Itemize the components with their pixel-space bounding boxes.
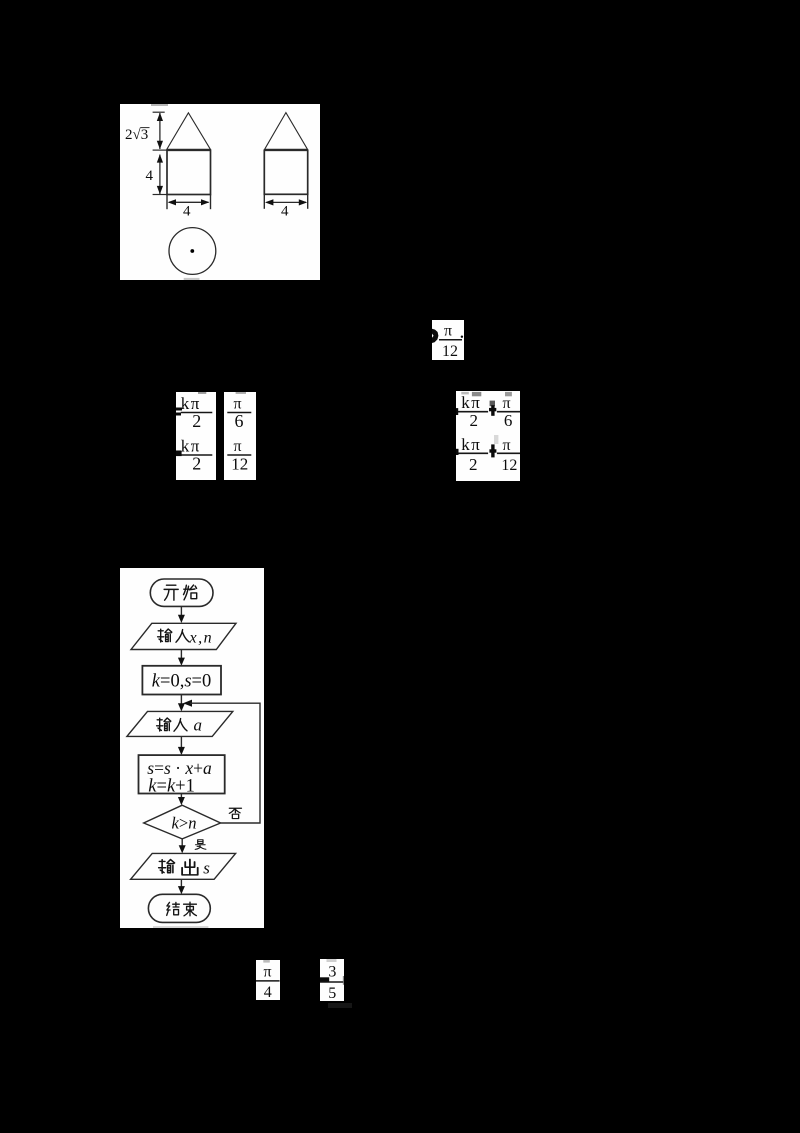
svg-text:2√3: 2√3 [125,127,148,143]
svg-text:π: π [502,437,510,454]
svg-text:kπ: kπ [181,394,200,413]
svg-text:12: 12 [442,343,458,360]
svg-text:k=0,s=0: k=0,s=0 [152,671,211,691]
svg-text:2: 2 [469,455,478,474]
svg-text:π: π [234,395,242,412]
svg-text:s=s · x+a: s=s · x+a [147,758,212,778]
svg-text:2: 2 [192,453,201,473]
svg-text:π: π [234,438,242,455]
svg-text:π: π [502,395,510,412]
svg-text:π: π [263,963,271,980]
svg-text:4: 4 [264,983,272,1000]
svg-text:k>n: k>n [171,813,196,832]
svg-text:π: π [444,322,452,339]
svg-text:3: 3 [328,964,336,981]
svg-text:a: a [193,715,202,734]
svg-text:4: 4 [281,203,289,219]
svg-text:12: 12 [231,454,248,473]
svg-text:s: s [203,858,210,877]
svg-text:4: 4 [146,168,154,184]
svg-text:4: 4 [183,203,191,219]
svg-text:kπ: kπ [181,436,200,455]
svg-text:kπ: kπ [461,393,480,412]
svg-text:k=k+1: k=k+1 [148,776,195,796]
svg-text:kπ: kπ [461,435,480,454]
svg-text:6: 6 [235,411,244,431]
svg-text:12: 12 [501,457,517,474]
svg-text:5: 5 [328,985,336,1001]
svg-text:x,n: x,n [188,629,213,646]
svg-text:2: 2 [192,411,201,431]
svg-text:2: 2 [469,411,478,430]
svg-text:6: 6 [504,411,512,430]
